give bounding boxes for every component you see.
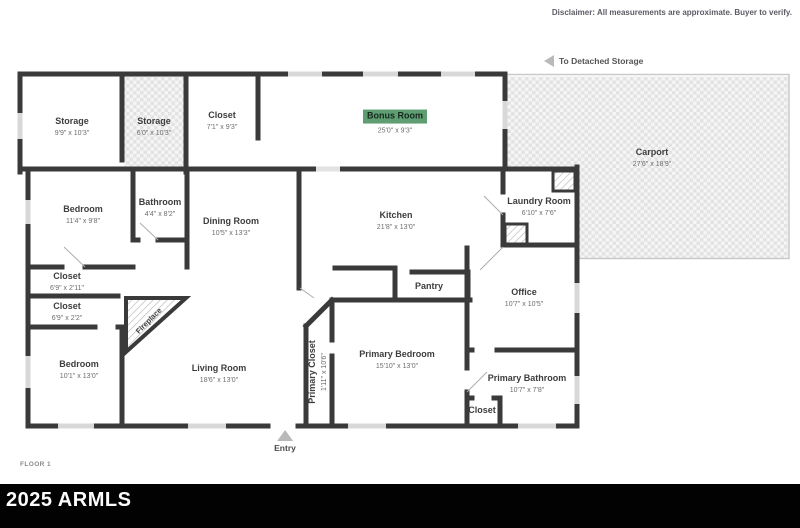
room-label-living-room: Living Room 18'6" x 13'0" [192, 363, 247, 385]
room-label-primary-closet: Primary Closet 1'11" x 10'6" [307, 340, 329, 404]
floorplan-drawing [0, 0, 800, 528]
watermark-bar: 2025 ARMLS [0, 484, 800, 528]
entry-annotation: Entry [274, 430, 296, 453]
laundry-fixture-top [553, 171, 575, 191]
entry-label: Entry [274, 443, 296, 453]
room-label-closet-top: Closet 7'1" x 9'3" [207, 110, 238, 132]
room-label-laundry-room: Laundry Room 6'10" x 7'6" [507, 196, 571, 218]
room-label-kitchen: Kitchen 21'8" x 13'0" [377, 210, 415, 232]
room-label-closet-hall-1: Closet 6'9" x 2'11" [50, 271, 84, 293]
watermark-text: 2025 ARMLS [6, 489, 131, 512]
room-label-closet-bath: Closet [468, 405, 496, 417]
room-label-pantry: Pantry [415, 281, 443, 293]
room-label-bonus-room: Bonus Room 25'0" x 9'3" [363, 105, 427, 136]
room-label-bathroom: Bathroom 4'4" x 8'2" [139, 197, 182, 219]
door-swings [64, 196, 503, 392]
room-label-storage-1: Storage 9'9" x 10'3" [55, 116, 90, 138]
room-label-bedroom-2: Bedroom 10'1" x 13'0" [59, 359, 99, 381]
room-label-primary-bedroom: Primary Bedroom 15'10" x 13'0" [359, 349, 435, 371]
room-label-closet-hall-2: Closet 6'9" x 2'2" [52, 301, 83, 323]
room-label-bedroom-1: Bedroom 11'4" x 9'8" [63, 204, 103, 226]
floor-label: FLOOR 1 [20, 461, 51, 468]
room-label-primary-bathroom: Primary Bathroom 10'7" x 7'8" [488, 373, 567, 395]
room-label-carport: Carport 27'6" x 18'9" [633, 147, 671, 169]
arrow-up-icon [277, 430, 293, 441]
floorplan-page: Disclaimer: All measurements are approxi… [0, 0, 800, 528]
room-label-storage-2: Storage 6'0" x 10'3" [137, 116, 172, 138]
room-label-office: Office 10'7" x 10'5" [505, 287, 543, 309]
laundry-fixture-bottom [505, 224, 527, 244]
room-label-dining-room: Dining Room 10'5" x 13'3" [203, 216, 259, 238]
